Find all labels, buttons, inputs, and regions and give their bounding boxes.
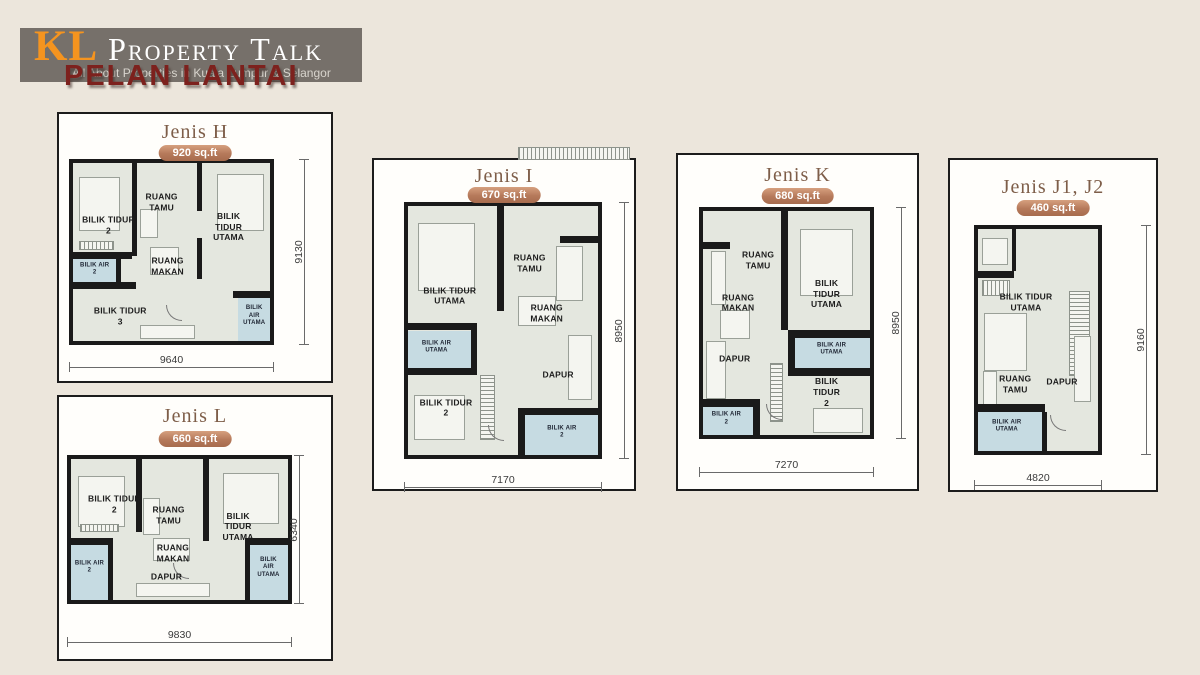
bathroom-label: BILIK AIR 2 [80,262,109,277]
dimension-width: 4820 [974,472,1102,486]
dimension-width: 9830 [67,629,292,643]
room-label: RUANG TAMU [514,253,546,274]
dimension-width-label: 7170 [491,474,514,486]
room-label: BILIK TIDUR UTAMA [213,511,263,543]
dimension-height: 8950 [613,202,625,459]
room-label: RUANG MAKAN [530,302,563,323]
plan-title: Jenis K [678,164,917,187]
furniture-wardrobe [982,238,1008,265]
wall-segment [408,323,473,330]
wall-segment [408,368,476,375]
floorplan-drawing: BILIK TIDUR 2 RUANG TAMU BILIK TIDUR UTA… [69,159,274,345]
wall-segment [471,323,478,375]
wall-segment [703,242,730,249]
hatch-detail [79,241,114,250]
wall-segment [197,238,202,279]
wall-segment [781,211,788,330]
wall-segment [788,330,870,338]
room-label: RUANG TAMU [999,374,1031,395]
wall-segment [518,408,598,415]
plan-title: Jenis J1, J2 [950,176,1156,199]
room-label: BILIK TIDUR 3 [94,305,147,326]
wall-segment [116,259,121,282]
room-label: BILIK TIDUR UTAMA [208,211,249,243]
area-badge: 680 sq.ft [761,188,834,204]
wall-segment [497,206,504,311]
dimension-height-label: 8950 [613,319,625,342]
floorplan-card-jenis-i: Jenis I 670 sq.ft BILIK TIDUR UTAMA RUAN… [372,158,636,491]
floorplan-card-jenis-j1-j2: Jenis J1, J2 460 sq.ft BILIK TIDUR UTAMA… [948,158,1158,492]
furniture-sofa [556,246,583,301]
area-badge: 670 sq.ft [468,187,541,203]
dimension-height-label: 6340 [288,518,300,541]
dimension-height: 9160 [1135,225,1147,455]
furniture-kitchen-counter [140,325,195,339]
room-label: RUANG MAKAN [722,292,755,313]
dimension-width-label: 9640 [160,354,183,366]
bathroom-label: BILIK AIR 2 [712,412,741,427]
wall-segment [132,163,137,256]
room-label: RUANG MAKAN [151,256,184,277]
wall-segment [1012,229,1017,271]
furniture-kitchen-counter [568,335,593,400]
wall-segment [978,404,1045,412]
wall-segment [197,163,202,211]
wall-segment [73,252,132,259]
bathroom-label: BILIK AIR UTAMA [817,342,846,357]
room-label: RUANG TAMU [146,192,178,213]
wall-segment [108,538,113,600]
room-label: BILIK TIDUR UTAMA [805,278,848,310]
furniture-kitchen-counter [136,583,210,597]
plan-title: Jenis H [59,121,331,144]
wall-segment [703,399,753,407]
bathroom-label: BILIK AIR UTAMA [243,305,265,328]
dimension-width-label: 9830 [168,629,191,641]
room-label: DAPUR [151,572,182,583]
dimension-height-label: 9130 [293,240,305,263]
plan-title: Jenis L [59,405,331,428]
dimension-width-label: 7270 [775,459,798,471]
plan-title: Jenis I [374,165,634,188]
dimension-height: 8950 [890,207,902,439]
wall-segment [233,291,270,298]
bathroom-label: BILIK AIR 2 [547,425,576,440]
bathroom-label: BILIK AIR UTAMA [257,556,279,579]
room-label: RUANG MAKAN [157,543,190,564]
room-label: BILIK TIDUR 2 [420,397,473,418]
room-label: DAPUR [542,370,573,381]
furniture-kitchen-counter [1074,336,1091,403]
wall-segment [203,459,208,541]
wall-segment [71,538,112,545]
furniture-dining-table [720,310,750,339]
hatch-detail [80,524,119,532]
floorplan-card-jenis-h: Jenis H 920 sq.ft BILIK TIDUR 2 RUANG TA… [57,112,333,383]
furniture-sofa [140,209,158,237]
wall-segment [518,415,525,455]
floorplan-drawing: RUANG TAMU RUANG MAKAN BILIK TIDUR UTAMA… [699,207,874,439]
dimension-height: 9130 [293,159,305,345]
furniture-bed [813,408,863,433]
wall-segment [560,236,598,243]
wall-segment [245,538,250,600]
dimension-width: 9640 [69,354,274,368]
room-label: RUANG TAMU [153,505,185,526]
floorplan-card-jenis-l: Jenis L 660 sq.ft BILIK TIDUR 2 RUANG TA… [57,395,333,661]
floorplan-drawing: BILIK TIDUR UTAMA RUANG TAMU RUANG MAKAN… [404,202,602,459]
wall-segment [788,368,870,376]
furniture-bed [984,313,1027,371]
area-badge: 460 sq.ft [1017,200,1090,216]
room-label: BILIK TIDUR 2 [88,493,141,514]
dimension-height-label: 9160 [1135,328,1147,351]
room-label: BILIK TIDUR 2 [805,377,848,409]
room-label: BILIK TIDUR 2 [82,215,135,236]
page-title: PELAN LANTAI [64,60,299,93]
room-label: BILIK TIDUR UTAMA [1000,292,1053,313]
dimension-height-label: 8950 [890,311,902,334]
door-arc [166,305,182,321]
wall-segment [73,282,136,289]
room-label: BILIK TIDUR UTAMA [423,285,476,306]
wall-segment [1042,412,1047,451]
area-badge: 920 sq.ft [159,145,232,161]
room-label: RUANG TAMU [742,250,774,271]
wall-segment [978,271,1014,278]
furniture-bed [418,223,475,290]
bathroom-label: BILIK AIR 2 [75,560,104,575]
dimension-width-label: 4820 [1026,472,1049,484]
floorplan-card-jenis-k: Jenis K 680 sq.ft RUANG TAMU RUANG MAKAN… [676,153,919,491]
bathroom-label: BILIK AIR UTAMA [422,340,451,355]
slide-background: KL Property Talk All About Properties in… [0,0,1200,675]
balcony-hatch-strip [518,147,630,160]
dimension-width: 7170 [404,474,602,488]
dimension-height: 6340 [288,455,300,604]
floorplan-drawing: BILIK TIDUR 2 RUANG TAMU BILIK TIDUR UTA… [67,455,292,604]
floorplan-drawing: BILIK TIDUR UTAMA RUANG TAMU DAPUR BILIK… [974,225,1102,455]
wall-segment [753,399,760,435]
door-arc [1050,415,1066,431]
dimension-width: 7270 [699,459,874,473]
area-badge: 660 sq.ft [159,431,232,447]
bathroom-label: BILIK AIR UTAMA [992,419,1021,434]
room-label: DAPUR [1046,377,1077,388]
room-label: DAPUR [719,354,750,365]
furniture-kitchen-counter [706,341,726,399]
